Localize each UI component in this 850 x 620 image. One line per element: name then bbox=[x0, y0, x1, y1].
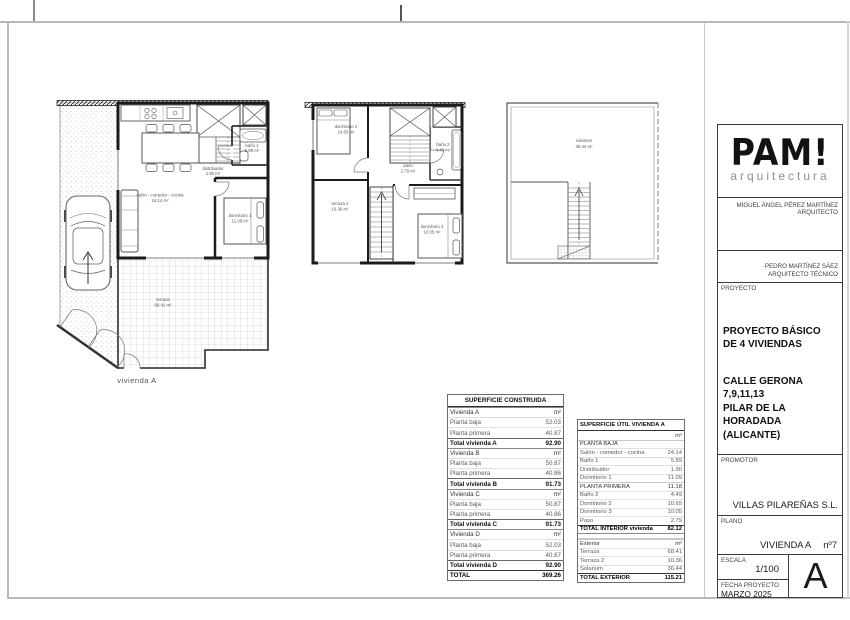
room-area: 10.65 m² bbox=[338, 130, 356, 135]
bed bbox=[418, 214, 462, 258]
logo-box: PAM! arquitectura bbox=[718, 125, 842, 198]
table-row: Paso2.79 bbox=[578, 516, 684, 525]
parapet-walls bbox=[507, 103, 658, 263]
promotor-label: PROMOTOR bbox=[721, 457, 758, 464]
table-row: PLANTA PRIMERA11.18 bbox=[578, 482, 684, 491]
table-row: Salón - comedor - cocina24.14 bbox=[578, 448, 684, 457]
proyecto-address: CALLE GERONA 7,9,11,13 PILAR DE LA HORAD… bbox=[718, 375, 842, 443]
table-row: Baño 24.49 bbox=[578, 491, 684, 500]
table-superficie-util: SUPERFICIE ÚTIL VIVIENDA A m²PLANTA BAJA… bbox=[577, 419, 685, 583]
room-label: paso bbox=[403, 163, 413, 168]
first-floor-plan: dormitorio 2 10.65 m² baño 2 4.49 m² pas… bbox=[305, 103, 465, 264]
table-row: PLANTA BAJA bbox=[578, 440, 684, 449]
plano-number: nº7 bbox=[823, 540, 837, 550]
table-row: TOTAL369.26 bbox=[448, 570, 563, 580]
bathtub bbox=[240, 129, 266, 142]
table-row: Dormitorio 210.65 bbox=[578, 499, 684, 508]
table-row: Planta baja50.87 bbox=[448, 458, 563, 468]
room-label: terraza bbox=[156, 297, 170, 302]
room-label: dormitorio 3 bbox=[421, 224, 444, 229]
stair-landing bbox=[558, 246, 590, 259]
title-block: PAM! arquitectura MIGUEL ÁNGEL PÉREZ MAR… bbox=[717, 124, 843, 598]
table-row: Vivienda Bm² bbox=[448, 448, 563, 458]
escala-label: ESCALA bbox=[721, 557, 746, 564]
table-row: Total vivienda D92.90 bbox=[448, 560, 563, 570]
escala-value: 1/100 bbox=[755, 564, 779, 575]
table-row: Terraza 210.36 bbox=[578, 556, 684, 565]
table-row: Planta baja50.87 bbox=[448, 499, 563, 509]
room-area: 4.49 m² bbox=[436, 148, 451, 153]
table-row: Planta primera40.87 bbox=[448, 550, 563, 560]
table-row: Vivienda Cm² bbox=[448, 489, 563, 499]
table-superficie-construida: SUPERFICIE CONSTRUIDA Vivienda Am²Planta… bbox=[447, 394, 564, 581]
table-row: Dormitorio 111.09 bbox=[578, 474, 684, 483]
room-label: terraza 2 bbox=[332, 201, 350, 206]
room-label: baño 2 bbox=[436, 142, 450, 147]
room-area: 36.44 m² bbox=[576, 144, 594, 149]
escala-cell: ESCALA 1/100 bbox=[718, 555, 788, 580]
table-row: TOTAL INTERIOR vivienda82.12 bbox=[578, 525, 684, 534]
table-title: SUPERFICIE CONSTRUIDA bbox=[448, 395, 563, 407]
terrace bbox=[118, 258, 268, 368]
proyecto-title: PROYECTO BÁSICO DE 4 VIVIENDAS bbox=[718, 325, 842, 351]
technical-role: ARQUITECTO TÉCNICO bbox=[722, 271, 838, 279]
address-line: 7,9,11,13 bbox=[723, 388, 837, 402]
fecha-value: MARZO 2025 bbox=[721, 589, 772, 599]
sheet-letter-cell: A bbox=[789, 555, 842, 597]
technical-name: PEDRO MARTÍNEZ SÁEZ bbox=[722, 263, 838, 271]
promotor-name: VILLAS PILAREÑAS S.L. bbox=[733, 500, 838, 510]
technical-architect-box: PEDRO MARTÍNEZ SÁEZ ARQUITECTO TÉCNICO bbox=[718, 251, 842, 283]
table-row: Planta baja52.03 bbox=[448, 539, 563, 549]
shaft-void bbox=[433, 107, 456, 127]
drawing-sheet: salón - comedor - cocina 24.14 m² distri… bbox=[0, 0, 850, 620]
stairs bbox=[390, 108, 430, 163]
table-row: TOTAL EXTERIOR115.21 bbox=[578, 573, 684, 582]
table-body: Vivienda Am²Planta baja52.03Planta prime… bbox=[448, 407, 563, 580]
architect-box: MIGUEL ÁNGEL PÉREZ MARTÍNEZ ARQUITECTO bbox=[718, 198, 842, 251]
table-row: Planta baja52.03 bbox=[448, 417, 563, 427]
stairs-down bbox=[370, 187, 393, 259]
room-area: 10.36 m² bbox=[332, 207, 350, 212]
table-title: SUPERFICIE ÚTIL VIVIENDA A bbox=[578, 420, 684, 431]
fecha-cell: FECHA PROYECTO MARZO 2025 bbox=[718, 580, 788, 597]
plano-label: PLANO bbox=[721, 518, 742, 525]
car-top-view-icon bbox=[64, 196, 112, 290]
table-row: Planta primera40.87 bbox=[448, 427, 563, 437]
address-line: PILAR DE LA HORADADA bbox=[723, 402, 837, 429]
proyecto-label: PROYECTO bbox=[721, 285, 756, 292]
fecha-label: FECHA PROYECTO bbox=[721, 582, 779, 589]
room-area: 10.05 m² bbox=[424, 230, 442, 235]
room-area: 11.09 m² bbox=[232, 219, 249, 224]
table-row: Vivienda Dm² bbox=[448, 529, 563, 539]
sofa bbox=[121, 190, 138, 252]
table-row: Distribuidor1.90 bbox=[578, 465, 684, 474]
address-line: CALLE GERONA bbox=[723, 375, 837, 389]
table-row: Baño 15.89 bbox=[578, 457, 684, 466]
plan-caption: vivienda A bbox=[117, 376, 156, 385]
table-row: Total vivienda C91.73 bbox=[448, 519, 563, 529]
table-row: Dormitorio 310.05 bbox=[578, 508, 684, 517]
architect-name: MIGUEL ÁNGEL PÉREZ MARTÍNEZ bbox=[722, 202, 838, 210]
table-body: m²PLANTA BAJASalón - comedor - cocina24.… bbox=[578, 431, 684, 582]
dining-table bbox=[142, 125, 199, 172]
table-row: Planta primera40.86 bbox=[448, 468, 563, 478]
table-row: Total vivienda A92.90 bbox=[448, 438, 563, 448]
pam-logo: PAM! bbox=[731, 137, 830, 170]
table-row: Planta primera40.86 bbox=[448, 509, 563, 519]
room-label: dormitorio 2 bbox=[335, 124, 358, 129]
kitchen-counter bbox=[121, 105, 190, 121]
table-row: m² bbox=[578, 431, 684, 440]
room-area: 2.79 m² bbox=[401, 169, 416, 174]
proyecto-box: PROYECTO PROYECTO BÁSICO DE 4 VIVIENDAS … bbox=[718, 283, 842, 456]
room-area: 24.14 m² bbox=[152, 198, 170, 203]
table-row: Vivienda Am² bbox=[448, 407, 563, 417]
room-area: 68.41 m² bbox=[155, 303, 173, 308]
stairs bbox=[197, 105, 240, 163]
room-label: salón - comedor - cocina bbox=[136, 193, 184, 198]
table-row: Total vivienda B91.73 bbox=[448, 478, 563, 488]
room-area: 5.89 m² bbox=[245, 148, 260, 153]
table-row: Exteriorm² bbox=[578, 539, 684, 548]
room-label: solarium bbox=[576, 138, 593, 143]
plano-name: VIVIENDA A bbox=[760, 540, 811, 550]
room-area: 1.90 m² bbox=[206, 171, 221, 176]
table-row: Solarium36.44 bbox=[578, 565, 684, 574]
shaft-void bbox=[243, 105, 266, 125]
address-line: (ALICANTE) bbox=[723, 429, 837, 443]
ground-floor-plan: salón - comedor - cocina 24.14 m² distri… bbox=[57, 101, 268, 386]
architect-role: ARQUITECTO bbox=[722, 209, 838, 217]
solarium-plan: solarium 36.44 m² bbox=[507, 103, 658, 263]
sheet-letter: A bbox=[803, 555, 827, 597]
promotor-box: PROMOTOR VILLAS PILAREÑAS S.L. bbox=[718, 455, 842, 516]
scale-date-box: ESCALA 1/100 FECHA PROYECTO MARZO 2025 A bbox=[718, 555, 842, 597]
closet bbox=[414, 188, 455, 199]
plano-box: PLANO VIVIENDA A nº7 bbox=[718, 516, 842, 555]
room-label: dormitorio 1 bbox=[229, 213, 252, 218]
table-row: Terraza68.41 bbox=[578, 548, 684, 557]
